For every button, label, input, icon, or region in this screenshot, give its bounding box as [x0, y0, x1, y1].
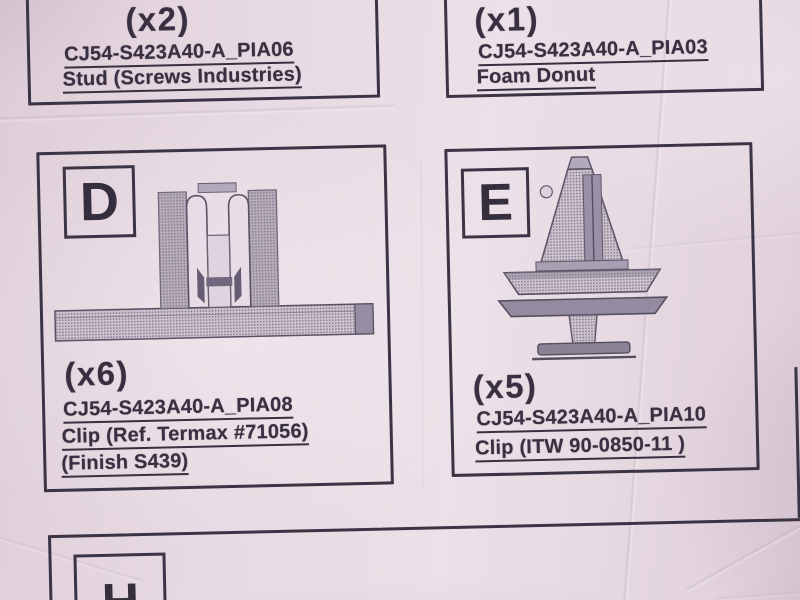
parts-cell-e: E — [444, 142, 759, 477]
part-quantity: (x5) — [472, 369, 537, 403]
clip-d-illustration — [46, 174, 384, 348]
parts-cell-top-right: (x1) CJ54-S423A40-A_PIA03 Foam Donut — [441, 0, 764, 98]
cell-letter: H — [101, 572, 140, 600]
cell-label-h: H — [73, 553, 168, 600]
part-number: CJ54-S423A40-A_PIA10 — [476, 404, 706, 433]
part-description: Clip (Ref. Termax #71056) — [62, 421, 309, 451]
part-description: Foam Donut — [476, 65, 595, 92]
paper-crease — [0, 104, 394, 122]
part-number: CJ54-S423A40-A_PIA03 — [478, 37, 708, 66]
paper-sheet: (x2) CJ54-S423A40-A_PIA06 Stud (Screws I… — [0, 0, 800, 600]
part-finish: (Finish S439) — [61, 451, 189, 478]
paper-crease — [420, 160, 426, 490]
part-number: CJ54-S423A40-A_PIA08 — [63, 395, 293, 424]
parts-cell-top-left: (x2) CJ54-S423A40-A_PIA06 Stud (Screws I… — [24, 0, 381, 105]
adjacent-cell-border-fragment — [794, 367, 800, 518]
part-description: Clip (ITW 90-0850-11 ) — [475, 434, 686, 463]
push-clip-e-illustration — [481, 151, 682, 371]
part-quantity: (x1) — [474, 2, 539, 36]
part-description: Stud (Screws Industries) — [62, 64, 302, 93]
photo-of-parts-sheet: (x2) CJ54-S423A40-A_PIA06 Stud (Screws I… — [0, 0, 800, 600]
part-quantity: (x2) — [125, 2, 190, 36]
parts-cell-d: D — [36, 144, 394, 492]
parts-cell-h: H — [48, 515, 800, 600]
part-quantity: (x6) — [64, 356, 129, 390]
